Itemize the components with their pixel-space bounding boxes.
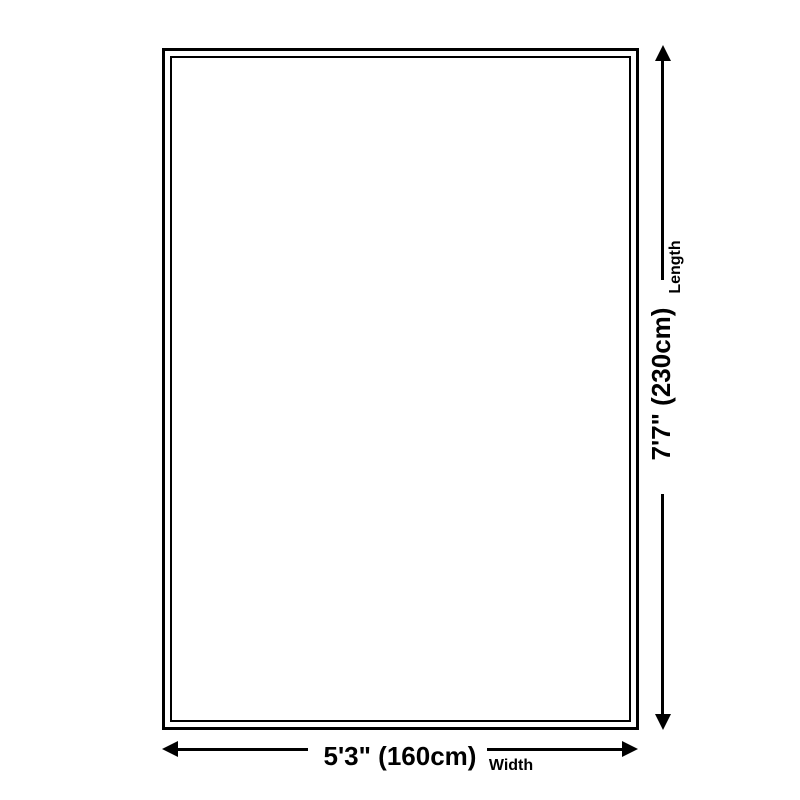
width-arrow-line-left [174, 748, 308, 751]
width-dimension-value: 5'3" (160cm) [324, 743, 477, 769]
length-dimension-value: 7'7" (230cm) [648, 308, 674, 461]
length-arrow-line-top [661, 57, 664, 280]
length-axis-label: Length [668, 240, 684, 293]
rug-inner-border [170, 56, 631, 722]
arrow-down-icon [655, 714, 671, 730]
arrow-right-icon [622, 741, 638, 757]
length-arrow-line-bottom [661, 494, 664, 720]
rug-outline [162, 48, 639, 730]
size-diagram: Length 7'7" (230cm) 5'3" (160cm) Width [0, 0, 800, 800]
width-axis-label: Width [489, 758, 533, 774]
width-arrow-line-right [487, 748, 626, 751]
